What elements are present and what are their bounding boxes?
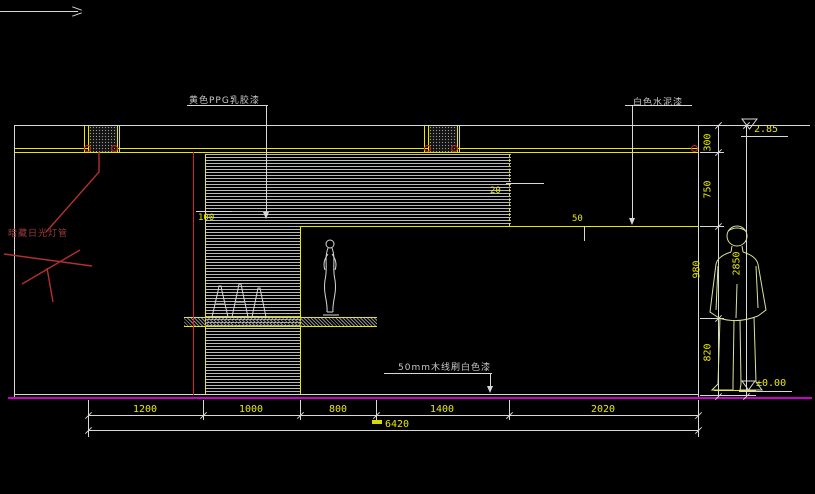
detail-dim-line [506,183,544,184]
label-leader-line [632,105,633,219]
dim-extension-line [376,400,377,420]
fixing-ring [424,145,431,152]
label-hidden-lamp: 暗藏日光灯管 [8,226,68,239]
detail-dim-tick [584,226,585,241]
ceiling-block-right-stub-b [459,126,460,152]
detail-dim-line [196,211,232,212]
label-underline [384,373,492,374]
dim-bottom-1000: 1000 [229,404,273,415]
vases-decor [210,284,270,320]
human-scale-figure [706,214,776,396]
dim-bottom-1400: 1400 [420,404,464,415]
dim-line-bottom-segments [88,415,698,416]
leader-arrow [487,386,493,393]
band-bottom-edge-line [300,226,698,227]
cad-elevation-canvas: 黄色PPG乳胶漆 白色水泥漆 暗藏日光灯管 50mm木线刷白色漆 100 20 … [0,0,815,494]
label-white-cement-paint: 白色水泥漆 [633,95,683,108]
label-underline [187,105,268,106]
dim-line-bottom-total [88,430,698,431]
label-wood-trim: 50mm木线刷白色漆 [398,360,491,373]
label-leader-line [490,373,491,387]
ceiling-top-line [14,125,810,126]
wall-panel-column [205,154,301,394]
floor-axis-magenta [8,397,812,399]
fixing-ring [451,145,458,152]
dim-right-980: 980 [692,260,703,278]
column-right-edge [300,226,301,394]
dim-right-750: 750 [703,170,714,210]
dim-right-300: 300 [703,123,714,163]
dim-note-mark [372,420,382,424]
dim-extension-line [203,400,204,420]
offscreen-leader-arrow [72,12,82,16]
dim-bottom-800: 800 [316,404,360,415]
detail-dim-ledge: 50 [572,214,583,224]
dim-extension-line [300,400,301,420]
label-underline [625,105,692,106]
leader-arrow [629,218,635,225]
dim-bottom-1200: 1200 [123,404,167,415]
panel-dashed-edge [509,154,510,226]
elevation-underline [741,136,788,137]
label-leader-line [266,105,267,213]
leader-arrow [263,212,269,219]
dim-bottom-2020: 2020 [581,404,625,415]
fixing-ring [691,145,698,152]
detail-dim-edge: 20 [490,186,501,196]
sculpture-figure [315,236,347,320]
offscreen-leader-line [0,11,78,12]
floor-line [14,394,698,395]
dim-extension-line [509,400,510,420]
elevation-value-top: 2.85 [754,124,778,135]
detail-dim-cove: 100 [198,213,214,223]
